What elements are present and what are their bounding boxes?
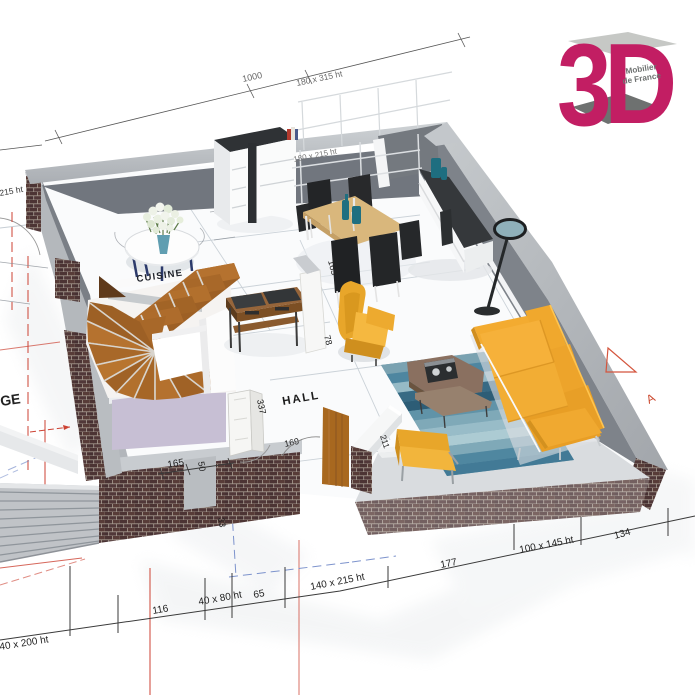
svg-text:GE: GE — [0, 390, 21, 409]
svg-text:50: 50 — [196, 461, 208, 473]
svg-text:D: D — [604, 19, 677, 147]
svg-text:33: 33 — [216, 517, 228, 529]
